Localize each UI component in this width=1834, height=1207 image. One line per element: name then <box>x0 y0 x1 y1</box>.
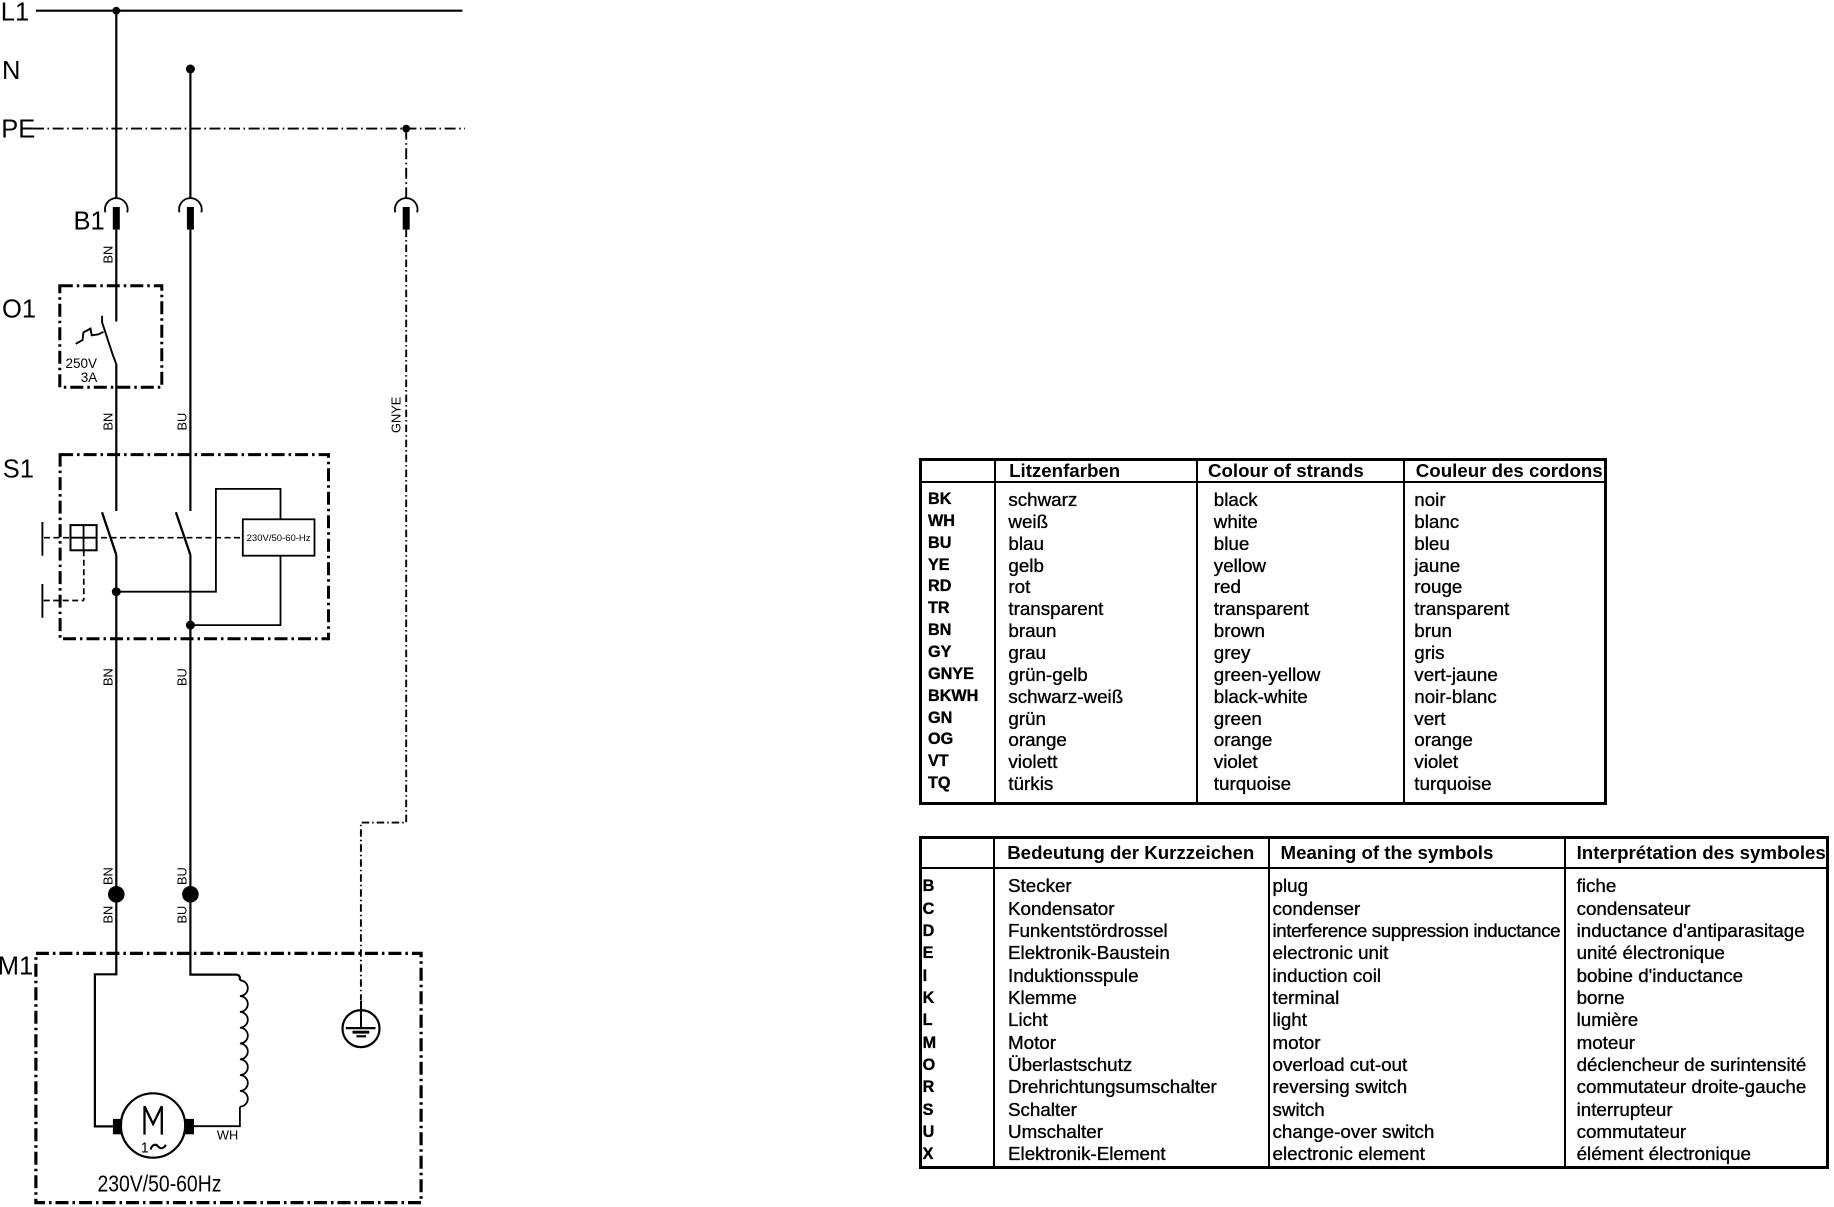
svg-text:BU: BU <box>174 413 189 431</box>
svg-text:3A: 3A <box>81 370 98 385</box>
svg-text:BN: BN <box>100 906 115 924</box>
svg-text:WH: WH <box>217 1128 238 1143</box>
svg-text:BN: BN <box>100 246 115 264</box>
svg-text:N: N <box>2 57 20 85</box>
svg-text:230V/50-60-Hz: 230V/50-60-Hz <box>247 533 311 544</box>
svg-text:BU: BU <box>174 867 189 885</box>
svg-text:S1: S1 <box>3 456 34 484</box>
svg-text:M1: M1 <box>0 952 33 980</box>
svg-text:230V/50-60Hz: 230V/50-60Hz <box>98 1171 222 1197</box>
svg-text:O1: O1 <box>2 296 36 324</box>
svg-text:BN: BN <box>100 668 115 686</box>
svg-text:GNYE: GNYE <box>389 397 404 433</box>
svg-text:1: 1 <box>141 1140 149 1156</box>
svg-text:BU: BU <box>174 906 189 924</box>
svg-text:PE: PE <box>1 116 35 144</box>
svg-text:B1: B1 <box>74 208 105 236</box>
svg-text:BN: BN <box>100 867 115 885</box>
svg-text:BN: BN <box>100 413 115 431</box>
svg-text:L1: L1 <box>1 0 29 27</box>
svg-text:BU: BU <box>174 668 189 686</box>
svg-text:250V: 250V <box>66 356 98 371</box>
